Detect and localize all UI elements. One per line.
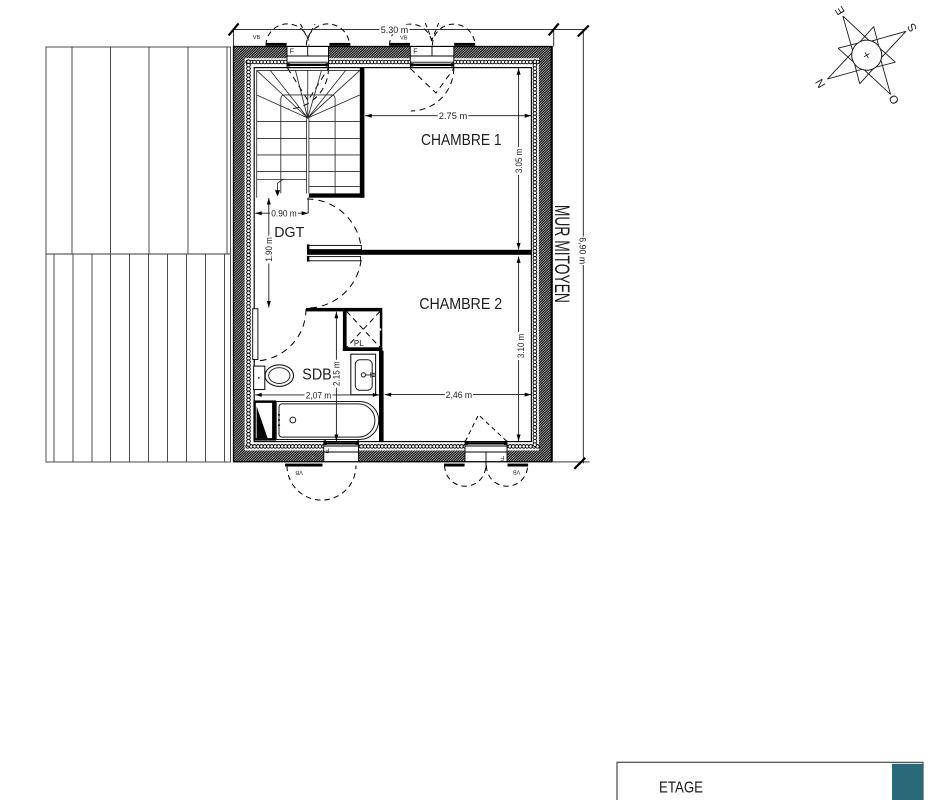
svg-text:2.75 m: 2.75 m — [439, 111, 468, 122]
svg-text:VB: VB — [513, 469, 521, 475]
svg-text:DGT: DGT — [274, 224, 304, 241]
svg-text:2.15 m: 2.15 m — [331, 361, 342, 386]
svg-text:ETAGE: ETAGE — [659, 779, 703, 796]
svg-text:F: F — [413, 49, 417, 56]
svg-text:CHAMBRE 1: CHAMBRE 1 — [421, 132, 502, 149]
svg-text:VB: VB — [253, 35, 261, 41]
svg-text:PL: PL — [354, 339, 364, 348]
svg-text:3.10 m: 3.10 m — [516, 334, 527, 359]
svg-text:F: F — [325, 447, 329, 454]
svg-text:F: F — [290, 49, 294, 56]
svg-text:MUR MITOYEN: MUR MITOYEN — [550, 205, 574, 303]
svg-text:5.30 m: 5.30 m — [381, 25, 409, 36]
svg-text:3.05 m: 3.05 m — [514, 149, 525, 174]
svg-text:CHAMBRE 2: CHAMBRE 2 — [419, 296, 502, 313]
svg-text:VB: VB — [400, 36, 408, 42]
svg-text:F: F — [500, 454, 504, 461]
svg-text:VB: VB — [295, 469, 303, 475]
svg-text:0.90 m: 0.90 m — [271, 209, 297, 220]
svg-text:6,90 m: 6,90 m — [576, 237, 587, 264]
svg-text:2,07 m: 2,07 m — [306, 390, 332, 401]
svg-text:2,46 m: 2,46 m — [446, 390, 473, 401]
svg-text:SDB: SDB — [302, 367, 332, 384]
